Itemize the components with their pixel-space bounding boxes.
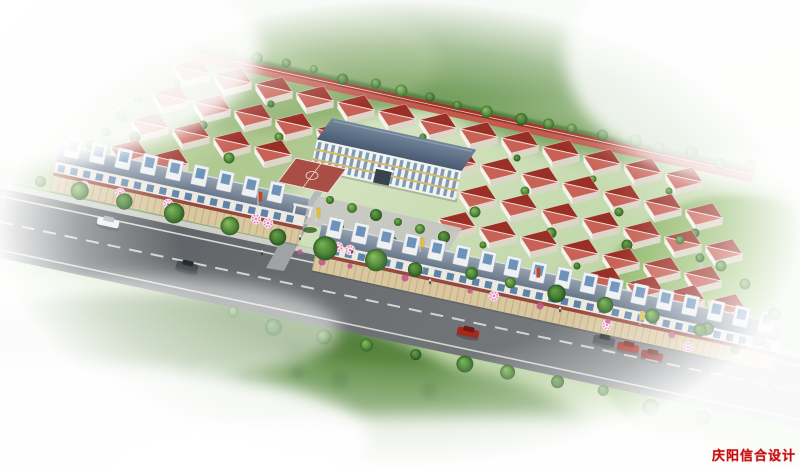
mist-overlay: [0, 0, 800, 466]
scene-canvas: [0, 0, 800, 466]
designer-watermark: 庆阳信合设计: [712, 445, 796, 464]
aerial-rendering: 庆阳信合设计: [0, 0, 800, 466]
